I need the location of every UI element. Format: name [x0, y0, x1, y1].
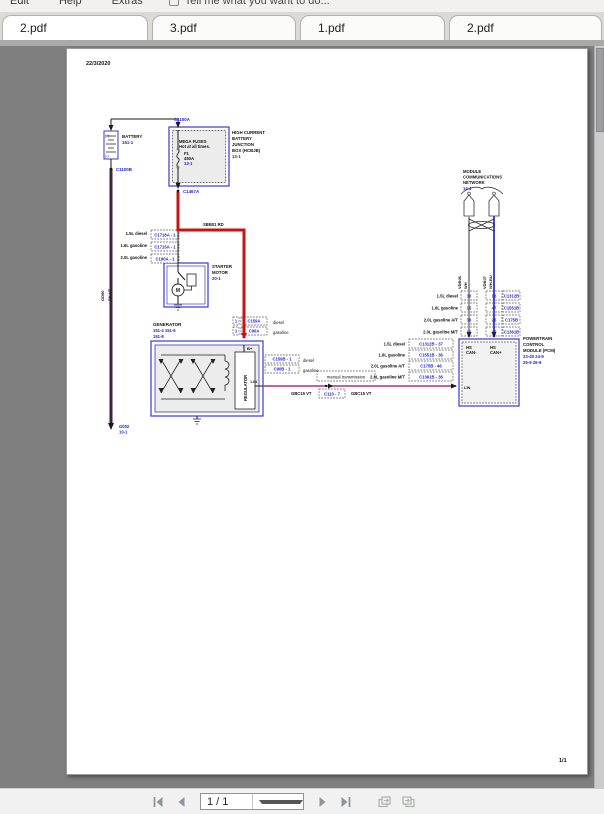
pcm-can-plus: CAN+: [490, 350, 502, 355]
megafuses-sub: Hot at all times.: [179, 144, 210, 149]
page-number-combobox[interactable]: 1 / 1: [200, 793, 304, 810]
chevron-down-icon: [259, 800, 304, 804]
gen-right-gasoline: gasoline: [303, 368, 319, 373]
assistant-icon: [169, 0, 179, 6]
gen-regulator: REGULATOR: [243, 375, 248, 401]
pcm-can-minus: CAN-: [466, 350, 477, 355]
arrow-bplus: [241, 333, 247, 339]
gen-bplus: B+: [247, 346, 253, 351]
hcbjb-title-1: HIGH CURRENT: [232, 130, 265, 135]
pcm-conn-4: C1361B: [504, 330, 519, 335]
pcm-ref-2: 25-9 26-9: [523, 360, 542, 365]
pin-variant-1: 1.5L diesel: [437, 294, 458, 299]
pcm-title-1: POWERTRAIN: [523, 336, 552, 341]
battery-minus: (-): [105, 154, 109, 158]
splice-dot: [110, 168, 113, 171]
menu-item-extras[interactable]: Extras: [112, 0, 143, 7]
generator-ref-2: 151-8: [153, 334, 164, 339]
can-wire-color-2: WH-BU: [488, 275, 493, 289]
assistant-search[interactable]: Tell me what you want to do...: [169, 0, 330, 7]
page-navigation: 1 / 1: [146, 793, 420, 811]
generator-ref-1: 151-4 151-6: [153, 328, 176, 333]
conn-c1716a: C1716A - 1: [154, 233, 176, 238]
conn-c159b: C159B - 1: [272, 357, 292, 362]
hcbjb-title-4: BOX (HCBJB): [232, 148, 261, 153]
starter-motor-box: [164, 263, 208, 307]
conn-c90a: C90A: [249, 329, 260, 334]
starter-title-1: STARTER: [212, 264, 233, 269]
conn-c1715a: C1715A - 1: [154, 245, 176, 250]
first-page-button[interactable]: [148, 793, 168, 811]
tab-2pdf-b[interactable]: 2.pdf: [449, 15, 602, 40]
variant-15l-diesel: 1.5L diesel: [126, 231, 147, 236]
can-wire-name-1: VDB06: [457, 275, 462, 289]
generator-title: GENERATOR: [153, 322, 182, 327]
pin-variant-2: 1.6L gasoline: [432, 306, 459, 311]
previous-view-icon: [377, 795, 392, 809]
splice-dot: [177, 190, 180, 193]
gen-right-diesel: diesel: [303, 358, 314, 363]
hcbjb-title-3: JUNCTION: [232, 142, 254, 147]
fuse-ref: 13-1: [184, 161, 193, 166]
battery-plus: (+): [105, 134, 110, 138]
pcm-conn-2: C1551B: [504, 306, 519, 311]
lin-conn-3: C175B - 46: [420, 364, 442, 369]
conn-c1467a: C1467A: [183, 189, 200, 194]
conn-c90b: C90B - 1: [274, 367, 291, 372]
document-area: C1716A - 1C1715A - 1C190A - 11C159A1C90A…: [0, 46, 604, 788]
mcn-title-1: MODULE: [463, 169, 481, 174]
network-terminator-icon: [489, 195, 499, 216]
can2-pin-2: 47: [492, 306, 497, 311]
variant-manual-transmission: manual transmission: [327, 375, 366, 380]
lin-variant-1: 1.5L diesel: [384, 342, 405, 347]
last-page-icon: [339, 795, 353, 809]
pcm-title-2: CONTROL: [523, 342, 545, 347]
gen-top-gasoline: gasoline: [273, 330, 289, 335]
document-tab-bar: 2.pdf 3.pdf 1.pdf 2.pdf: [0, 12, 604, 40]
lin-conn-2: C1551B - 36: [419, 353, 443, 358]
lin-wire-label-2: GBC15 VT: [351, 391, 372, 396]
previous-page-icon: [175, 795, 189, 809]
pcm-conn-3: C175B: [505, 318, 518, 323]
can1-pin-4: 15: [467, 330, 472, 335]
combobox-caret[interactable]: [252, 794, 304, 809]
scrollbar-thumb[interactable]: [596, 48, 604, 132]
pdf-page: C1716A - 1C1715A - 1C190A - 11C159A1C90A…: [66, 48, 588, 775]
last-page-button[interactable]: [336, 793, 356, 811]
tab-3pdf[interactable]: 3.pdf: [152, 15, 296, 40]
arrow-lin-into-pcm: [451, 384, 457, 389]
mcn-title-3: NETWORK: [463, 180, 485, 185]
wire-color-bkvt: BK-VT: [107, 288, 112, 301]
vertical-scrollbar[interactable]: [594, 46, 604, 788]
conn-c190a: C190A - 1: [156, 257, 176, 262]
ground-g002-ref: 10-1: [119, 430, 128, 435]
ground-g002: G002: [119, 424, 130, 429]
gen-lin: LIN: [251, 379, 258, 384]
can-wire-color-1: WH: [463, 282, 468, 289]
next-view-icon: [401, 795, 416, 809]
print-date: 22/3/2020: [86, 61, 110, 67]
battery-ref: 151-1: [122, 140, 134, 145]
next-page-button[interactable]: [312, 793, 332, 811]
conn-c110: C110 - 7: [324, 392, 341, 397]
pcm-conn-1: C1312B: [504, 294, 519, 299]
menu-item-edit[interactable]: Edit: [10, 0, 29, 7]
ground-icon: [193, 419, 201, 424]
tab-2pdf-a[interactable]: 2.pdf: [2, 15, 148, 40]
can1-pin-2: 15: [467, 306, 472, 311]
pin-variant-3: 2.0L gasoline A/T: [424, 318, 459, 323]
network-terminator-icon: [464, 195, 474, 216]
hcbjb-title-2: BATTERY: [232, 136, 252, 141]
menu-item-help[interactable]: Help: [59, 0, 82, 7]
can2-pin-4: 47: [492, 330, 497, 335]
conn-c1100b: C1100B: [116, 167, 132, 172]
first-page-icon: [151, 795, 165, 809]
starter-title-2: MOTOR: [212, 270, 229, 275]
pin-variant-4: 2.0L gasoline M/T: [423, 330, 458, 335]
wire-sbb01: SBB01 RD: [203, 222, 224, 227]
tab-1pdf[interactable]: 1.pdf: [300, 15, 445, 40]
menu-bar: Edit Help Extras Tell me what you want t…: [0, 0, 604, 12]
inline-connector-c110: [328, 384, 333, 389]
next-view-button[interactable]: [398, 793, 418, 811]
starter-ref: 20-1: [212, 276, 221, 281]
pdf-viewer-window: Edit Help Extras Tell me what you want t…: [0, 0, 604, 814]
lin-wire-label-1: GBC15 VT: [291, 391, 312, 396]
next-page-icon: [315, 795, 329, 809]
arrow-down: [109, 125, 114, 131]
ground-arrow-g002: [108, 423, 114, 430]
can1-pin-1: 30: [467, 294, 472, 299]
pcm-title-3: MODULE (PCM): [523, 348, 556, 353]
pcm-ref-1: 23-40 24-9: [523, 354, 544, 359]
mcn-title-2: COMMUNICATIONS: [463, 175, 502, 180]
previous-page-button[interactable]: [172, 793, 192, 811]
wire-name-gd90: GD90: [100, 290, 105, 301]
hcbjb-ref: 13-1: [232, 154, 241, 159]
can2-pin-1: 16: [492, 294, 497, 299]
assistant-hint: Tell me what you want to do...: [185, 0, 330, 7]
page-number-value: 1 / 1: [201, 796, 252, 808]
variant-16l-gasoline: 1.6L gasoline: [121, 243, 148, 248]
wiring-diagram: C1716A - 1C1715A - 1C190A - 11C159A1C90A…: [67, 49, 589, 776]
conn-c159a: C159A: [247, 319, 260, 324]
variant-20l-gasoline: 2.0L gasoline: [121, 255, 148, 260]
view-history-buttons: [372, 793, 420, 811]
conn-c1100a: C1100A: [174, 117, 191, 122]
can2-pin-3: 26: [492, 318, 497, 323]
lin-conn-4: C1361B - 36: [419, 375, 443, 380]
previous-view-button[interactable]: [374, 793, 394, 811]
status-bar: 1 / 1: [0, 788, 604, 814]
can1-pin-3: 36: [467, 318, 472, 323]
battery-title: BATTERY: [122, 134, 142, 139]
starter-solenoid: [187, 274, 196, 286]
sheet-number: 1/1: [559, 758, 567, 764]
lin-variant-2: 1.6L gasoline: [379, 353, 406, 358]
gen-top-diesel: diesel: [273, 320, 284, 325]
can-wire-name-2: VDB07: [482, 275, 487, 289]
pcm-lin: LIN: [464, 385, 471, 390]
lin-variant-3: 2.0L gasoline A/T: [371, 364, 406, 369]
lin-variant-4: 2.0L gasoline M/T: [370, 375, 405, 380]
lin-conn-1: C1312B - 37: [419, 342, 443, 347]
starter-motor-m: M: [176, 288, 180, 294]
mcn-ref: 14-4: [463, 186, 472, 191]
